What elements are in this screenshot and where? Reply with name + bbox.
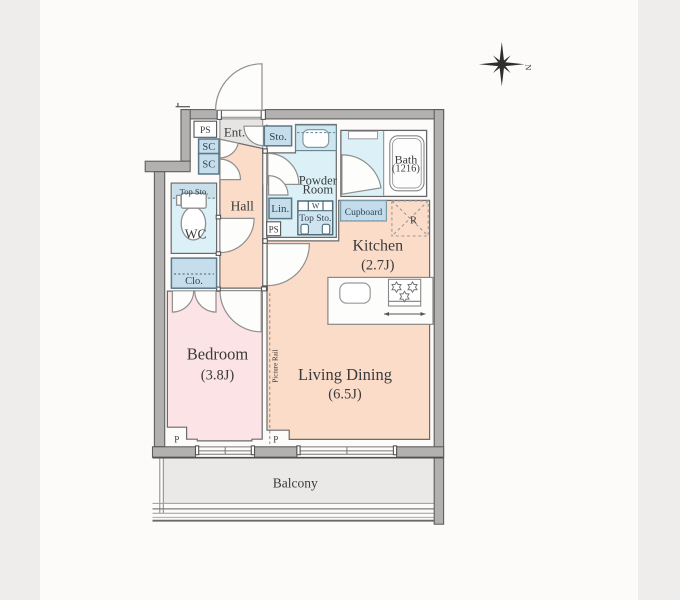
svg-text:PS: PS xyxy=(269,224,279,234)
svg-text:P: P xyxy=(273,435,278,445)
svg-text:Lin.: Lin. xyxy=(271,203,289,215)
svg-text:Clo.: Clo. xyxy=(185,276,203,287)
svg-text:(1216): (1216) xyxy=(392,163,420,174)
svg-text:Cupboard: Cupboard xyxy=(345,208,383,218)
svg-text:Picture Rail: Picture Rail xyxy=(272,349,280,382)
svg-text:Top Sto.: Top Sto. xyxy=(180,186,209,196)
svg-text:Ent.: Ent. xyxy=(224,125,245,140)
svg-text:PS: PS xyxy=(200,126,211,136)
svg-text:R: R xyxy=(410,216,417,227)
svg-text:Room: Room xyxy=(303,183,334,197)
svg-text:(6.5J): (6.5J) xyxy=(328,387,362,403)
svg-text:(3.8J): (3.8J) xyxy=(201,367,235,383)
svg-text:Sto.: Sto. xyxy=(269,131,287,143)
svg-text:P: P xyxy=(174,435,179,445)
svg-text:WC: WC xyxy=(185,227,207,242)
svg-text:Balcony: Balcony xyxy=(273,476,318,491)
svg-text:(2.7J): (2.7J) xyxy=(361,257,395,273)
svg-text:SC: SC xyxy=(202,160,215,171)
svg-text:Hall: Hall xyxy=(231,199,254,214)
svg-text:Top Sto.: Top Sto. xyxy=(299,214,331,224)
svg-text:Living Dining: Living Dining xyxy=(298,365,392,384)
svg-text:W: W xyxy=(312,201,320,210)
svg-text:SC: SC xyxy=(202,142,215,153)
svg-text:N: N xyxy=(523,64,533,70)
svg-text:Kitchen: Kitchen xyxy=(352,237,403,254)
svg-text:Bedroom: Bedroom xyxy=(187,344,249,363)
